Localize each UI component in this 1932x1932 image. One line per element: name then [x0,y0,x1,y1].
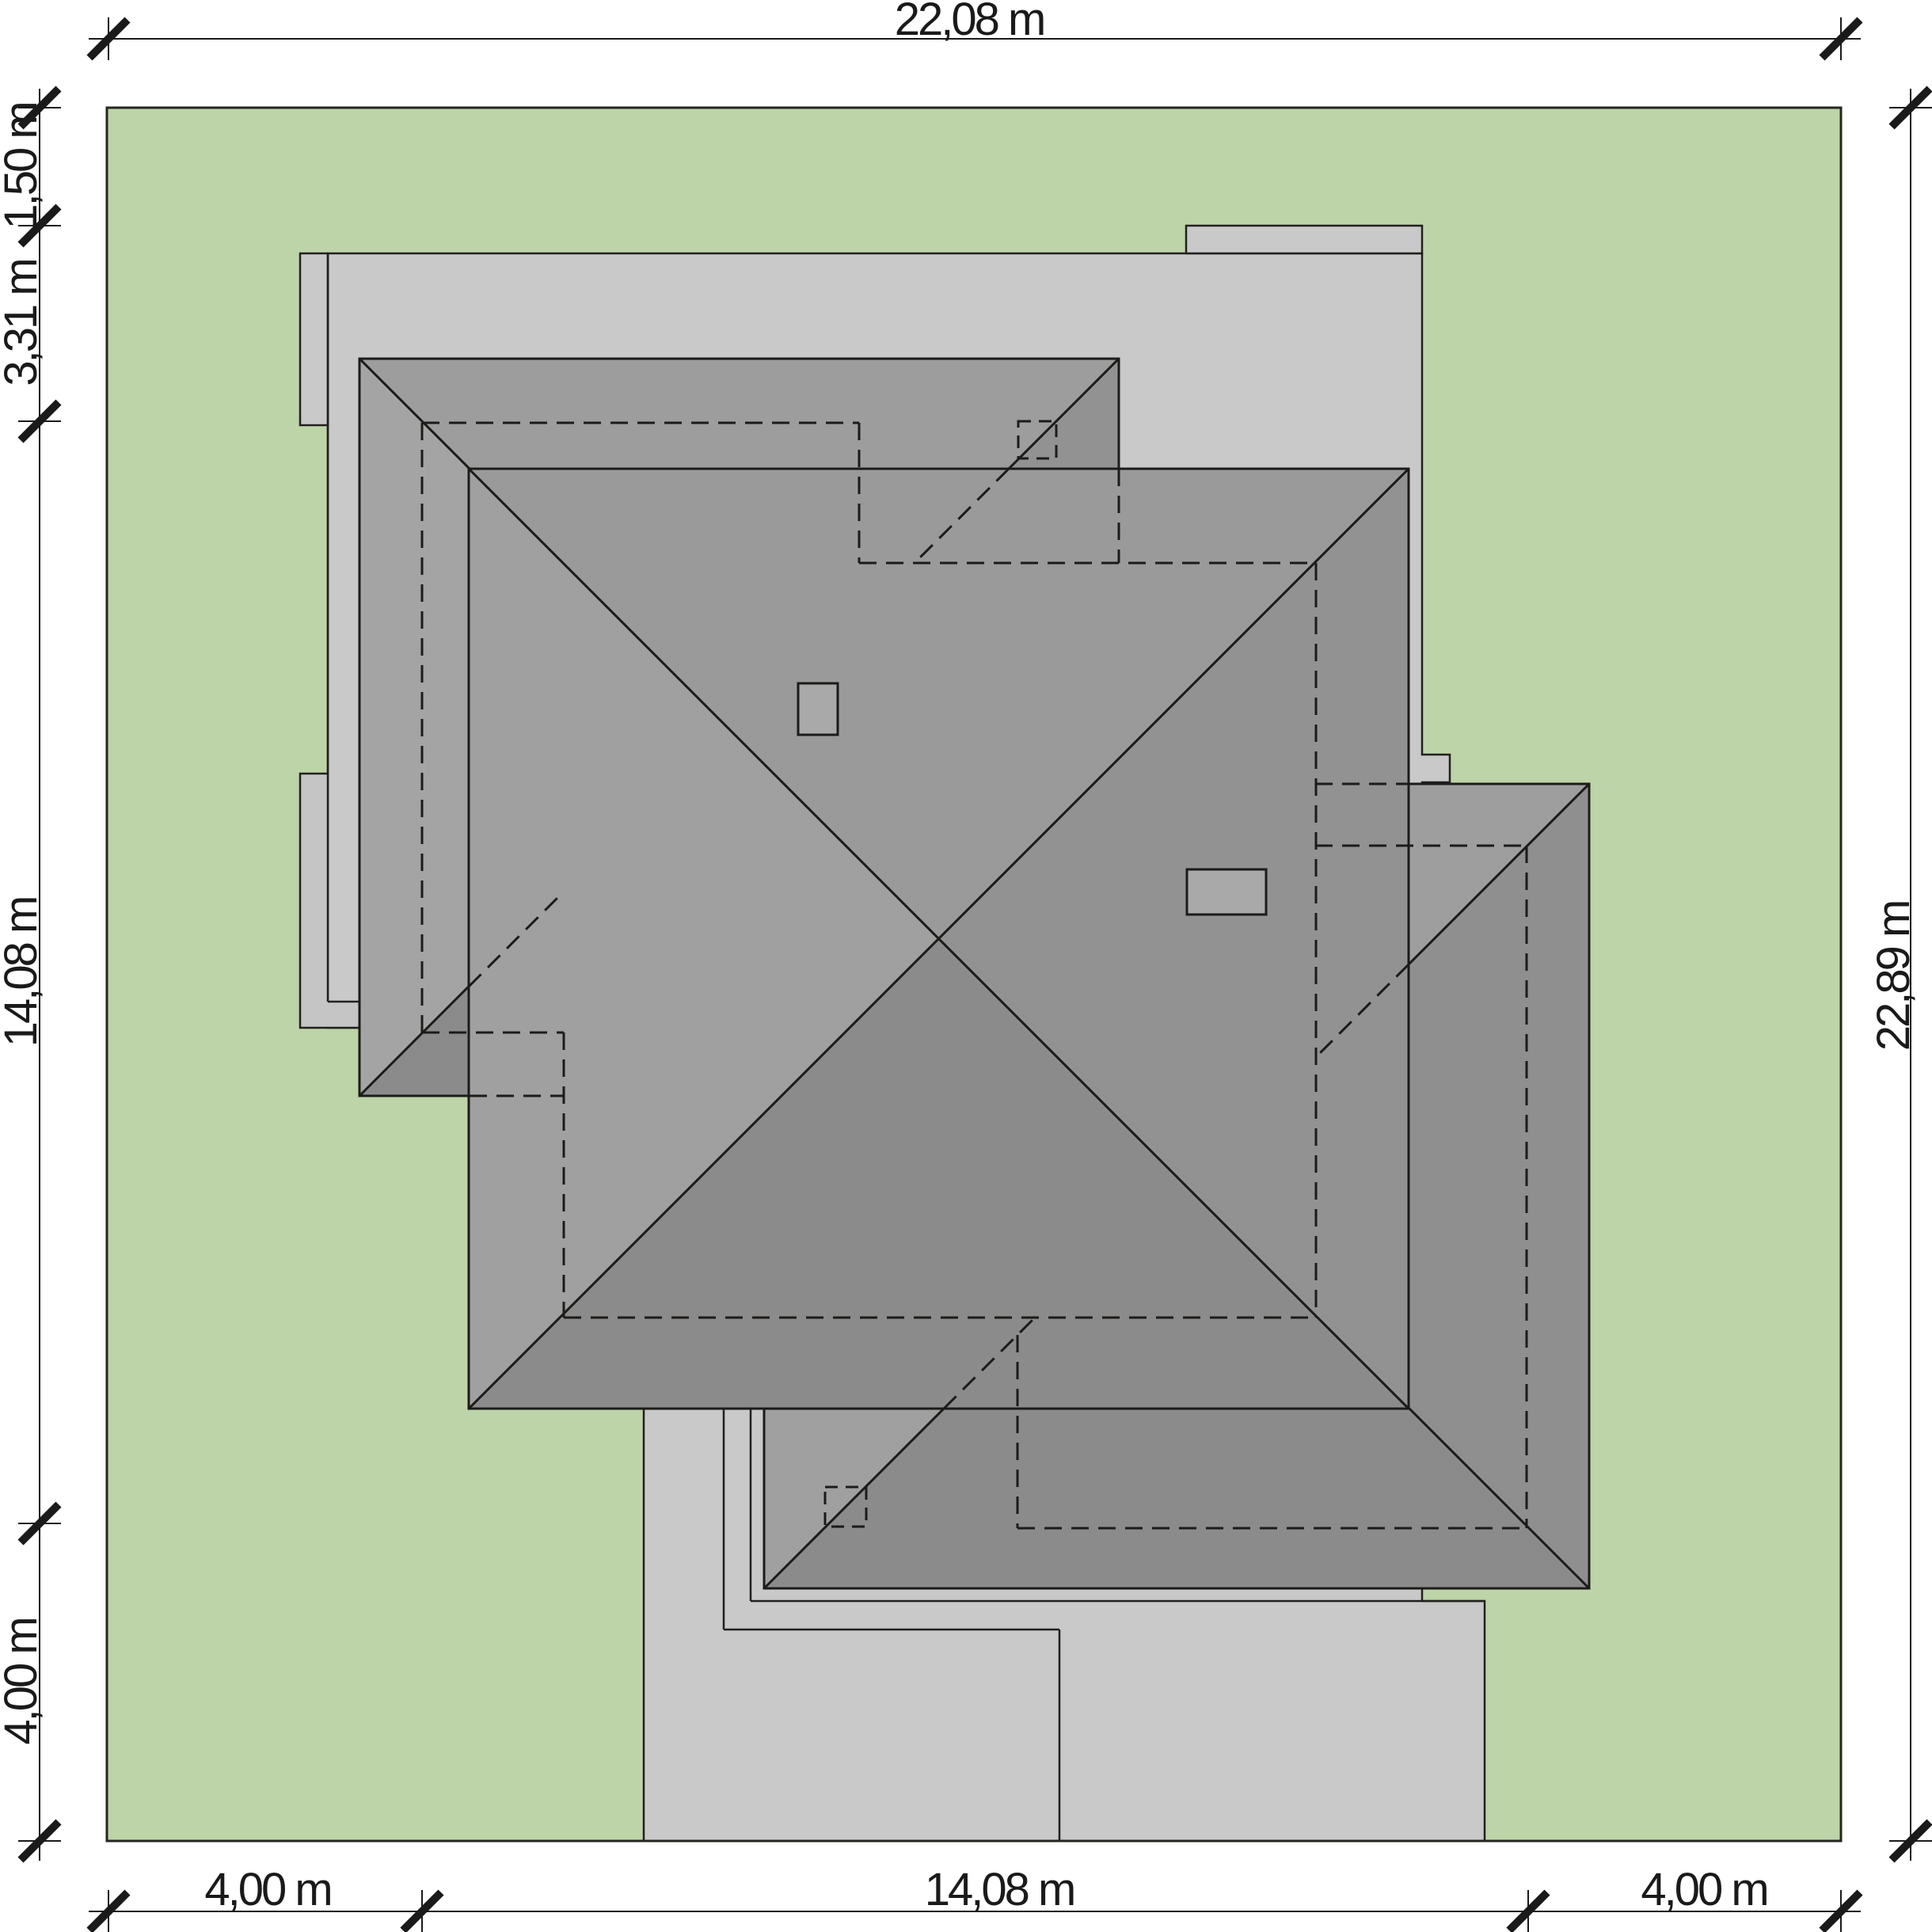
svg-text:14,08 m: 14,08 m [0,898,47,1048]
svg-text:4,00 m: 4,00 m [1641,1864,1767,1915]
svg-text:4,00 m: 4,00 m [204,1864,330,1915]
svg-text:22,89 m: 22,89 m [1868,902,1919,1052]
svg-text:3,31 m: 3,31 m [0,260,47,386]
svg-text:14,08 m: 14,08 m [925,1864,1074,1915]
svg-text:4,00 m: 4,00 m [0,1618,47,1744]
svg-text:1,50 m: 1,50 m [0,103,47,229]
svg-text:22,08 m: 22,08 m [895,0,1044,45]
